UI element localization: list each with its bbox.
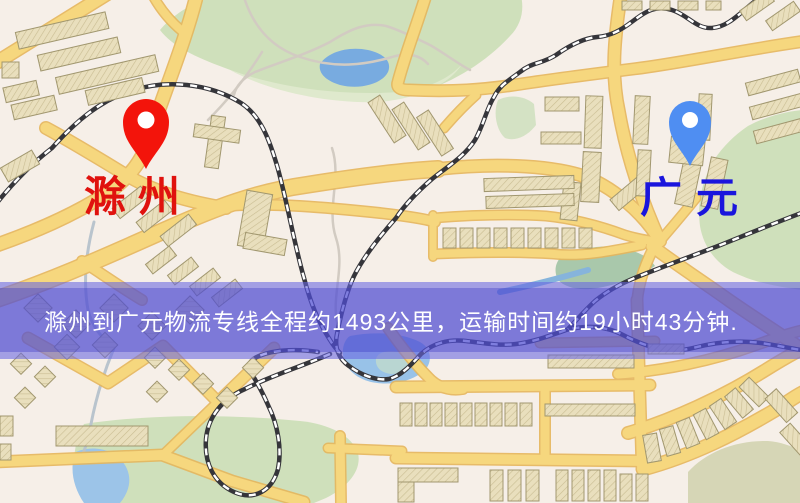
- origin-label: 滁州: [84, 176, 192, 220]
- route-info-text: 滁州到广元物流专线全程约1493公里，运输时间约19小时43分钟.: [0, 303, 738, 337]
- route-info-banner: 滁州到广元物流专线全程约1493公里，运输时间约19小时43分钟.: [0, 282, 800, 359]
- route-info-banner-inner: 滁州到广元物流专线全程约1493公里，运输时间约19小时43分钟.: [0, 288, 800, 352]
- map-canvas: [0, 0, 800, 503]
- destination-label: 广元: [640, 177, 752, 221]
- map-screenshot: 滁州 广元 滁州到广元物流专线全程约1493公里，运输时间约19小时43分钟.: [0, 0, 800, 503]
